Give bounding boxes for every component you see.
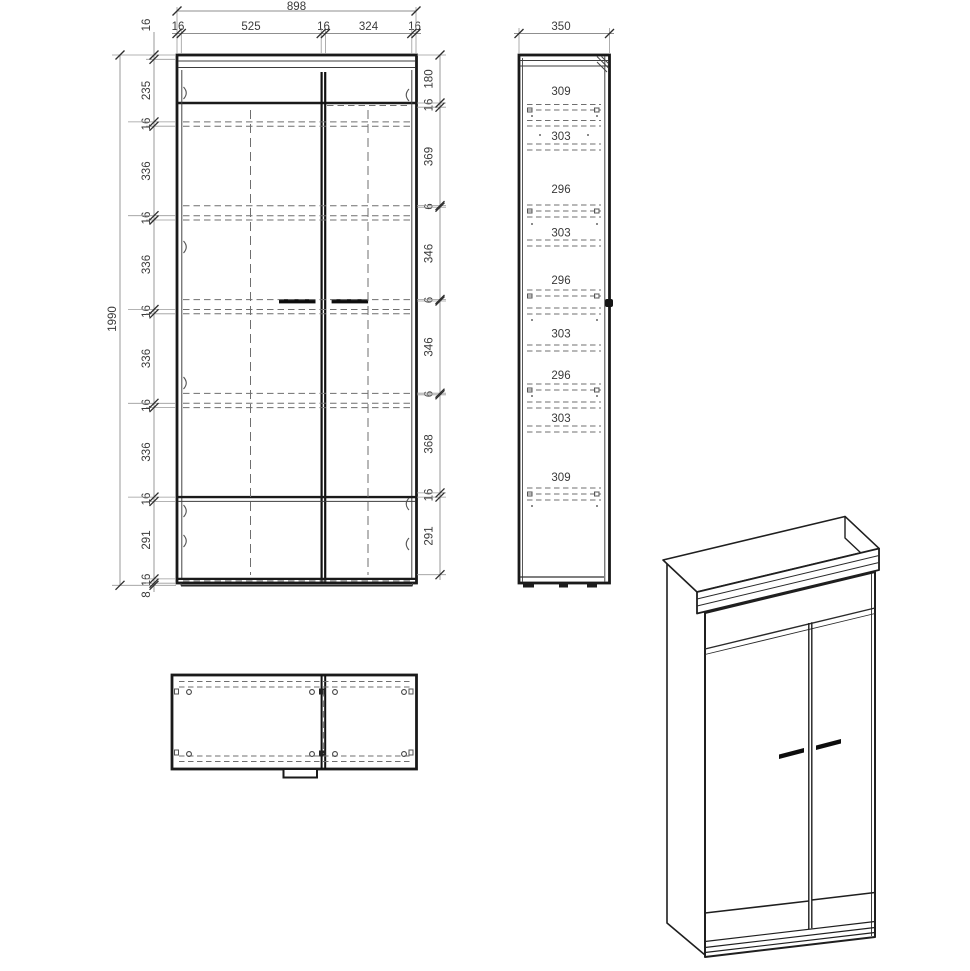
dowel-dot bbox=[596, 505, 598, 507]
front-view bbox=[177, 55, 417, 586]
dim-label-overall-height: 1990 bbox=[107, 306, 119, 332]
dim-label: 16 bbox=[424, 99, 436, 112]
dim-label: 336 bbox=[141, 442, 153, 461]
dim-label: 346 bbox=[424, 244, 436, 263]
dim-label-plinth: 8 bbox=[141, 591, 153, 597]
technical-drawing-page: 898 16 525 16 324 16 1990 16 235 16 336 … bbox=[0, 0, 970, 971]
dowel-dot bbox=[596, 395, 598, 397]
dim-label: 309 bbox=[551, 472, 570, 484]
dim-label: 525 bbox=[241, 21, 260, 33]
dowel-dot bbox=[587, 134, 589, 136]
side-foot-1 bbox=[523, 583, 534, 588]
dim-label: 6 bbox=[424, 391, 436, 397]
dim-label: 16 bbox=[424, 489, 436, 502]
dowel-dot bbox=[531, 115, 533, 117]
dim-label: 309 bbox=[551, 86, 570, 98]
front-dimension-left-chain: 1990 16 235 16 336 16 336 16 336 16 336 … bbox=[107, 19, 154, 598]
dowel-dot bbox=[596, 115, 598, 117]
dim-label: 291 bbox=[424, 526, 436, 545]
dowel-dot bbox=[596, 223, 598, 225]
wardrobe-front-outline bbox=[177, 55, 417, 583]
top-view bbox=[172, 675, 417, 778]
dim-label: 346 bbox=[424, 337, 436, 356]
side-view: 309 303 296 303 296 303 296 303 309 bbox=[519, 55, 613, 588]
dim-label-overall-width: 898 bbox=[287, 1, 306, 13]
side-dimension-depth: 350 bbox=[514, 21, 614, 34]
technical-drawing: 898 16 525 16 324 16 1990 16 235 16 336 … bbox=[0, 0, 970, 971]
dim-label: 303 bbox=[551, 131, 570, 143]
iso-view bbox=[663, 517, 879, 958]
plan-handle-tab bbox=[284, 769, 318, 778]
dim-label: 336 bbox=[141, 255, 153, 274]
dim-label: 16 bbox=[141, 19, 153, 32]
dim-label: 6 bbox=[424, 203, 436, 209]
dim-label: 303 bbox=[551, 329, 570, 341]
iso-left-side-panel bbox=[667, 561, 705, 955]
side-handle-knob bbox=[605, 299, 613, 307]
dowel-dot bbox=[539, 134, 541, 136]
dowel-dot bbox=[531, 505, 533, 507]
dim-label: 324 bbox=[359, 21, 379, 33]
dowel-dot bbox=[531, 319, 533, 321]
wardrobe-plan-outline bbox=[172, 675, 417, 769]
dim-label: 368 bbox=[424, 434, 436, 453]
dim-label: 336 bbox=[141, 161, 153, 180]
dim-label: 235 bbox=[141, 81, 153, 100]
dim-label: 296 bbox=[551, 370, 570, 382]
dim-label: 303 bbox=[551, 413, 570, 425]
dim-label: 296 bbox=[551, 184, 570, 196]
dim-label: 16 bbox=[172, 21, 185, 33]
dim-label: 291 bbox=[141, 530, 153, 549]
dim-label: 296 bbox=[551, 275, 570, 287]
front-dimension-top-chain: 898 16 525 16 324 16 bbox=[172, 1, 421, 34]
dim-label-depth: 350 bbox=[551, 21, 570, 33]
plan-center-hardware-top bbox=[319, 689, 326, 695]
dim-label: 369 bbox=[424, 147, 436, 166]
side-foot-3 bbox=[587, 583, 597, 588]
iso-front-face bbox=[705, 572, 875, 957]
dowel-dot bbox=[531, 395, 533, 397]
dim-label: 180 bbox=[424, 69, 436, 88]
dim-label: 303 bbox=[551, 228, 570, 240]
dim-label: 16 bbox=[141, 574, 153, 587]
dowel-dot bbox=[531, 223, 533, 225]
dim-label: 6 bbox=[424, 297, 436, 303]
front-dimension-right-chain: 180 16 369 6 346 6 346 6 368 16 291 bbox=[424, 55, 441, 580]
side-foot-2 bbox=[559, 583, 568, 588]
dim-label: 336 bbox=[141, 349, 153, 368]
dowel-dot bbox=[596, 319, 598, 321]
